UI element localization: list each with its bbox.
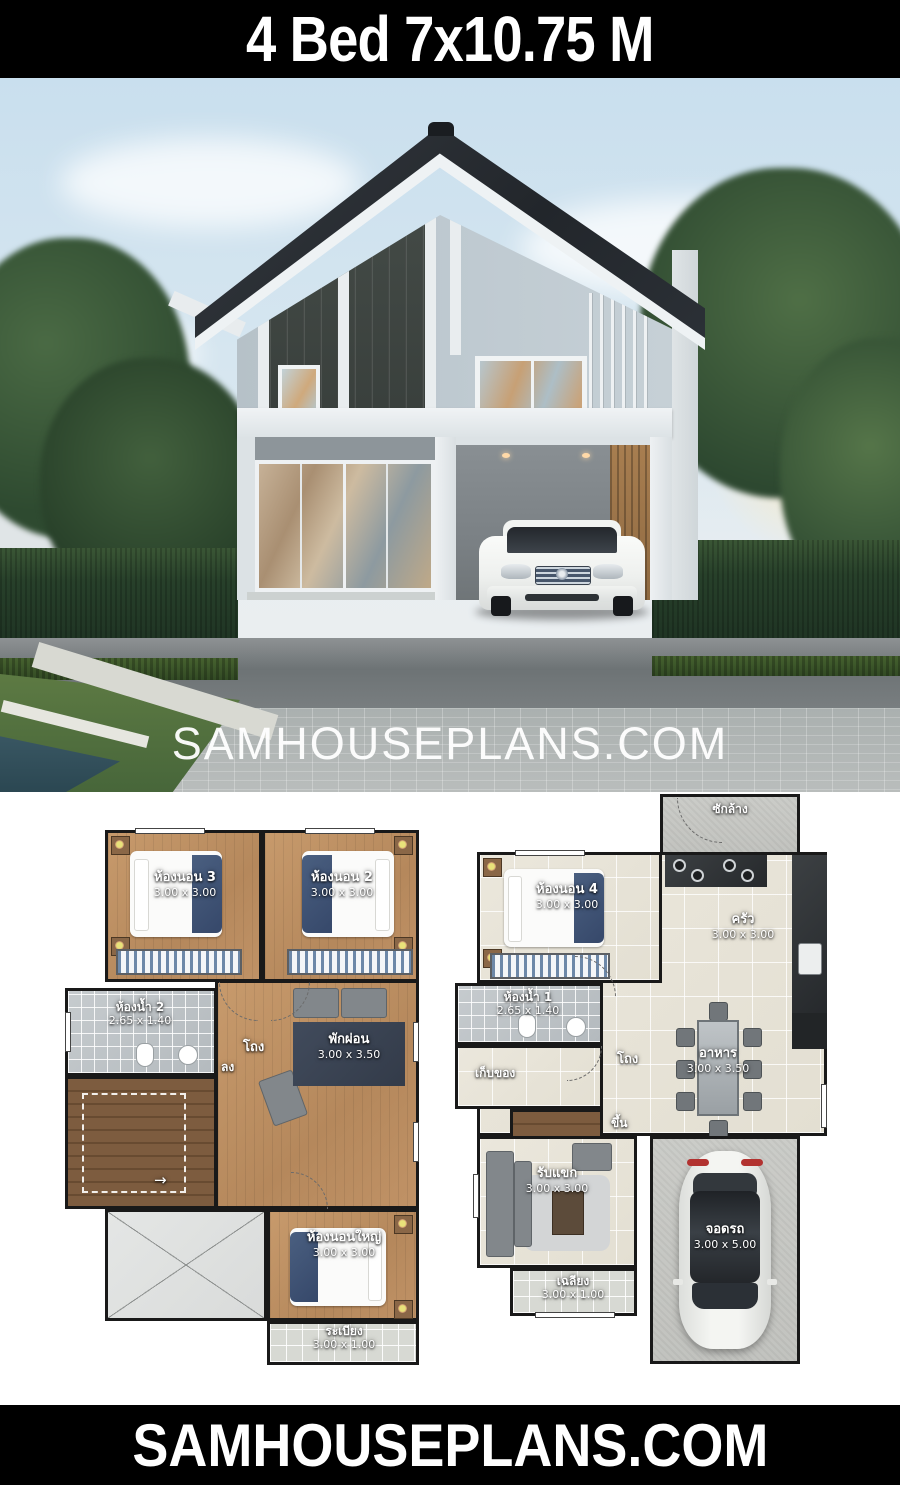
bed-blanket <box>192 855 222 933</box>
bed <box>504 869 604 947</box>
bedroom3-room <box>105 830 262 982</box>
bed <box>130 851 222 937</box>
window-mark <box>413 1122 419 1162</box>
footer-brand: SAMHOUSEPLANS.COM <box>132 1411 768 1480</box>
kitchen-counter <box>665 855 767 887</box>
stove-burner <box>691 869 704 882</box>
wardrobe <box>287 949 413 975</box>
door-mullion <box>343 464 346 588</box>
nightstand <box>111 836 130 855</box>
house-render-photo: SAMHOUSEPLANS.COM <box>0 78 900 792</box>
garage-room <box>650 1136 800 1364</box>
window-mark <box>305 828 375 834</box>
toilet <box>136 1043 154 1067</box>
window-mark <box>515 850 585 856</box>
dining-chair <box>743 1060 762 1079</box>
footer-bar: SAMHOUSEPLANS.COM <box>0 1405 900 1485</box>
refrigerator <box>792 1013 827 1049</box>
car-headlight <box>501 564 531 579</box>
floor-band <box>237 408 672 437</box>
bed <box>290 1228 386 1306</box>
stove-burner <box>673 859 686 872</box>
lamp <box>115 840 124 849</box>
armchair <box>572 1143 612 1171</box>
dining-chair <box>743 1028 762 1047</box>
master-bedroom-room <box>267 1209 419 1321</box>
page-title: 4 Bed 7x10.75 M <box>246 2 654 76</box>
cloud <box>60 138 360 228</box>
balcony-room <box>267 1321 419 1365</box>
car-windshield <box>692 1283 758 1309</box>
bed-blanket <box>574 873 604 943</box>
dining-chair <box>676 1060 695 1079</box>
door-header <box>255 437 435 460</box>
bathroom2-room <box>65 988 217 1076</box>
window-mark <box>535 1312 615 1318</box>
nightstand <box>394 836 413 855</box>
downlight <box>502 453 510 458</box>
door-mullion <box>386 464 388 588</box>
nightstand <box>394 1215 413 1234</box>
window-mark <box>65 1012 71 1052</box>
bed-pillow <box>134 859 149 931</box>
sink-basin <box>178 1045 198 1065</box>
door-mullion <box>300 464 302 588</box>
car-mirror <box>767 1279 777 1285</box>
car-windshield <box>507 527 617 553</box>
dining-chair <box>709 1002 728 1021</box>
car-taillight <box>687 1159 709 1166</box>
parked-car <box>479 520 645 618</box>
relax-rug <box>293 1022 405 1086</box>
living-room <box>477 1136 637 1268</box>
low-hedge-right <box>652 656 900 676</box>
car-wheel <box>491 596 511 616</box>
living-sliding-door <box>255 460 435 592</box>
column <box>435 437 456 600</box>
car-top-view <box>679 1151 771 1349</box>
window-mark <box>135 828 205 834</box>
kitchen-counter-right <box>792 855 827 1013</box>
roof-ridge-cap <box>428 122 454 136</box>
first-floor-plan: ซักล้าง ห้องนอน 4 3.00 x 3.00 <box>455 794 850 1369</box>
lamp <box>398 840 407 849</box>
wardrobe <box>116 949 242 975</box>
door-step <box>247 592 443 600</box>
toilet <box>518 1014 536 1038</box>
downlight <box>582 453 590 458</box>
poster-page: 4 Bed 7x10.75 M <box>0 0 900 1485</box>
bed-blanket <box>302 855 332 933</box>
sofa-seat <box>514 1161 532 1247</box>
car-wheel <box>613 596 633 616</box>
lamp <box>398 1219 407 1228</box>
facade-trim <box>450 215 461 355</box>
bedroom4-room <box>477 852 662 983</box>
window-mark <box>821 1084 827 1128</box>
armchair <box>341 988 387 1018</box>
porch-room <box>510 1268 637 1316</box>
sofa <box>486 1151 514 1257</box>
car-taillight <box>741 1159 763 1166</box>
window-mark <box>413 1022 419 1062</box>
stairs-down: → <box>65 1076 217 1209</box>
car-emblem <box>556 568 568 580</box>
bed-pillow <box>368 1235 382 1301</box>
stove-burner <box>741 869 754 882</box>
nightstand <box>394 1300 413 1319</box>
column <box>650 437 672 600</box>
lamp <box>487 862 496 871</box>
nightstand <box>483 858 502 877</box>
open-to-below <box>105 1209 267 1321</box>
dining-chair <box>676 1092 695 1111</box>
car-air-intake <box>525 594 599 601</box>
car-mirror <box>673 1279 683 1285</box>
dining-chair <box>743 1092 762 1111</box>
bed-blanket <box>290 1232 318 1302</box>
coffee-table <box>552 1191 584 1235</box>
dining-table <box>697 1020 739 1116</box>
bed-pillow <box>508 876 522 942</box>
stair-path <box>82 1093 186 1193</box>
window-mark <box>473 1174 479 1218</box>
watermark: SAMHOUSEPLANS.COM <box>0 718 900 770</box>
car-roof-glass <box>690 1191 760 1283</box>
car-headlight <box>593 564 623 579</box>
second-floor-plan: ห้องนอน 3 3.00 x 3.00 ห้องนอน 2 3.00 x 3… <box>65 822 450 1367</box>
kitchen-sink <box>798 943 822 975</box>
bed <box>302 851 394 937</box>
dining-chair <box>676 1028 695 1047</box>
bedroom2-room <box>262 830 419 982</box>
title-bar: 4 Bed 7x10.75 M <box>0 0 900 78</box>
lamp <box>398 1304 407 1313</box>
sink-basin <box>566 1017 586 1037</box>
floor-plans-section: ห้องนอน 3 3.00 x 3.00 ห้องนอน 2 3.00 x 3… <box>0 792 900 1405</box>
stove-burner <box>723 859 736 872</box>
bed-pillow <box>375 859 390 931</box>
